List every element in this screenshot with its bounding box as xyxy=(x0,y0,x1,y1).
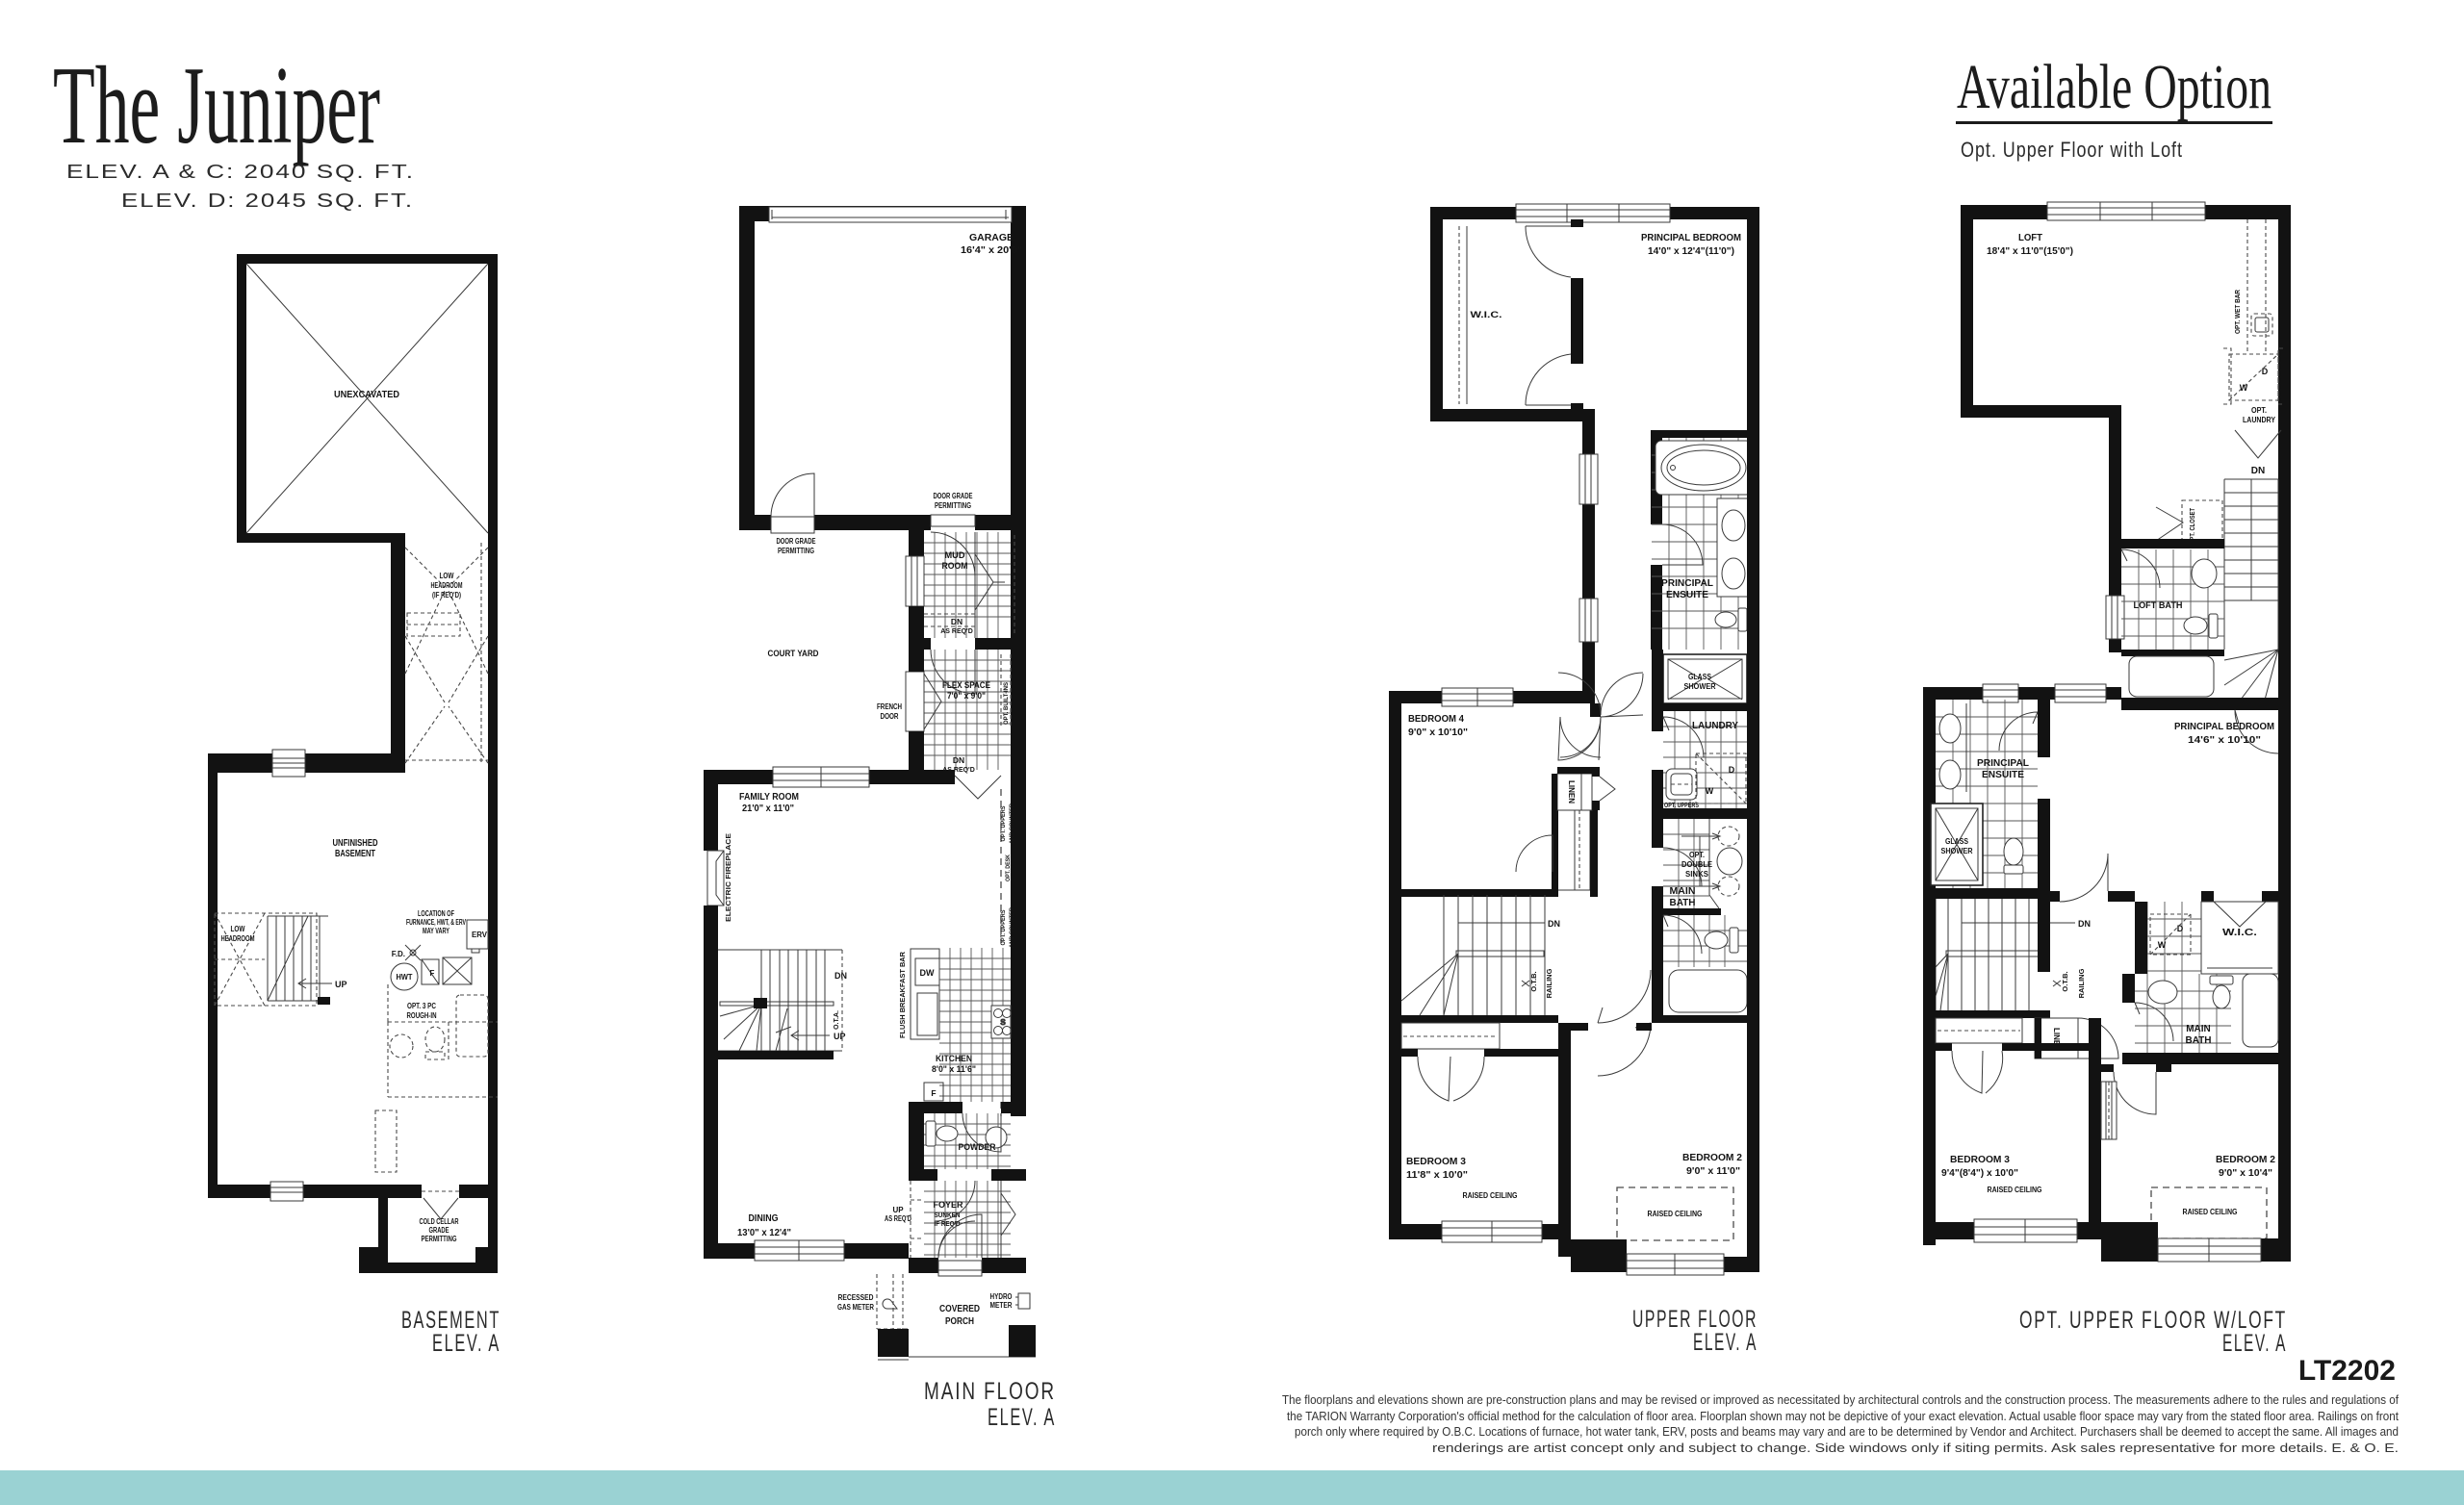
svg-text:DN: DN xyxy=(834,971,847,981)
svg-text:DN: DN xyxy=(2078,919,2091,929)
svg-text:ELECTRIC FIREPLACE: ELECTRIC FIREPLACE xyxy=(726,833,732,922)
svg-text:W: W xyxy=(2158,940,2167,950)
svg-text:BEDROOM 2: BEDROOM 2 xyxy=(2216,1154,2275,1165)
svg-text:LT2202: LT2202 xyxy=(2298,1355,2396,1387)
svg-text:W: W xyxy=(2240,383,2248,393)
svg-text:GARAGE: GARAGE xyxy=(969,232,1014,243)
svg-text:Available Option: Available Option xyxy=(1957,52,2271,122)
svg-text:RAISED CEILING: RAISED CEILING xyxy=(2183,1208,2238,1216)
svg-text:GRADE: GRADE xyxy=(429,1226,449,1235)
svg-text:OPT. 3 PC: OPT. 3 PC xyxy=(407,1002,436,1010)
svg-text:HEADROOM: HEADROOM xyxy=(431,581,463,590)
svg-text:BEDROOM 2: BEDROOM 2 xyxy=(1682,1152,1742,1163)
svg-text:UP: UP xyxy=(834,1032,846,1041)
svg-text:The Juniper: The Juniper xyxy=(53,44,380,167)
svg-text:OPT.: OPT. xyxy=(2251,406,2267,415)
svg-text:AS REQ'D: AS REQ'D xyxy=(885,1214,911,1223)
svg-text:F: F xyxy=(430,969,435,978)
svg-text:MUD: MUD xyxy=(945,550,966,560)
svg-text:Opt. Upper Floor with Loft: Opt. Upper Floor with Loft xyxy=(1961,138,2183,162)
svg-text:DN: DN xyxy=(953,755,964,765)
svg-text:O.T.A.: O.T.A. xyxy=(834,1010,840,1030)
svg-text:IF REQ'D: IF REQ'D xyxy=(935,1219,961,1228)
svg-text:D: D xyxy=(2262,367,2269,376)
svg-text:LAUNDRY: LAUNDRY xyxy=(2243,416,2276,424)
svg-text:ENSUITE: ENSUITE xyxy=(1982,769,2024,780)
svg-text:LINEN: LINEN xyxy=(1567,780,1576,804)
svg-text:GLASS: GLASS xyxy=(1945,837,1969,846)
svg-text:O.T.B.: O.T.B. xyxy=(1529,971,1538,991)
svg-text:LOCATION OF: LOCATION OF xyxy=(418,909,454,918)
svg-text:HEADROOM: HEADROOM xyxy=(221,934,255,943)
svg-text:D: D xyxy=(2177,924,2184,933)
svg-text:F: F xyxy=(931,1088,936,1098)
svg-text:GLASS: GLASS xyxy=(1688,673,1712,681)
svg-text:The floorplans and elevations: The floorplans and elevations shown are … xyxy=(1282,1392,2399,1407)
svg-text:9'0" x 10'4": 9'0" x 10'4" xyxy=(2219,1167,2272,1179)
svg-text:SHOWER: SHOWER xyxy=(1684,682,1716,691)
svg-text:HWT: HWT xyxy=(397,973,413,982)
svg-text:9'0" x 11'0": 9'0" x 11'0" xyxy=(1686,1165,1740,1177)
svg-text:MAY VARY: MAY VARY xyxy=(423,927,449,935)
svg-text:GAS METER: GAS METER xyxy=(837,1303,874,1312)
svg-text:MAIN: MAIN xyxy=(1670,885,1696,897)
svg-text:LOFT BATH: LOFT BATH xyxy=(2134,600,2183,611)
svg-text:BATH: BATH xyxy=(2185,1035,2211,1046)
svg-text:METER: METER xyxy=(990,1301,1013,1310)
svg-text:PORCH: PORCH xyxy=(945,1315,974,1327)
svg-text:RAISED CEILING: RAISED CEILING xyxy=(1463,1191,1518,1200)
svg-text:UNEXCAVATED: UNEXCAVATED xyxy=(334,390,399,400)
svg-text:PERMITTING: PERMITTING xyxy=(778,547,814,555)
svg-text:14'0" x 12'4"(11'0"): 14'0" x 12'4"(11'0") xyxy=(1648,245,1734,257)
svg-text:COVERED: COVERED xyxy=(939,1303,980,1314)
svg-text:W.I.C.: W.I.C. xyxy=(1471,310,1502,320)
svg-text:16'4" x 20'0": 16'4" x 20'0" xyxy=(961,244,1022,256)
svg-text:UP: UP xyxy=(335,980,347,989)
svg-text:14'6" x 10'10": 14'6" x 10'10" xyxy=(2188,734,2261,746)
svg-text:FRENCH: FRENCH xyxy=(877,702,902,711)
svg-text:BEDROOM 4: BEDROOM 4 xyxy=(1408,713,1464,725)
svg-text:BASEMENT: BASEMENT xyxy=(335,848,375,859)
svg-text:BATH: BATH xyxy=(1670,897,1696,908)
svg-text:MAIN: MAIN xyxy=(2186,1024,2211,1034)
svg-text:DOOR: DOOR xyxy=(881,712,899,721)
svg-text:OPT. UPPERS: OPT. UPPERS xyxy=(1000,909,1007,946)
svg-text:ELEV. A & C: 2040 SQ. FT.: ELEV. A & C: 2040 SQ. FT. xyxy=(66,161,415,183)
svg-text:D: D xyxy=(1729,765,1735,775)
svg-text:ELEV. A: ELEV. A xyxy=(2222,1330,2287,1357)
svg-text:DINING: DINING xyxy=(749,1212,779,1224)
svg-text:DOUBLE: DOUBLE xyxy=(1681,860,1713,869)
svg-text:UP: UP xyxy=(892,1206,904,1214)
svg-text:(IF REQ'D): (IF REQ'D) xyxy=(432,591,461,599)
svg-text:ELEV. A: ELEV. A xyxy=(1693,1329,1758,1356)
svg-text:RECESSED: RECESSED xyxy=(838,1293,874,1302)
svg-text:porch only where required by O: porch only where required by O.B.C. Loca… xyxy=(1295,1424,2399,1439)
svg-text:SINKS: SINKS xyxy=(1685,870,1709,879)
svg-text:LOFT: LOFT xyxy=(2018,232,2043,243)
svg-text:the TARION Warranty Corporatio: the TARION Warranty Corporation's offici… xyxy=(1287,1409,2399,1423)
svg-text:7'0" x 9'0": 7'0" x 9'0" xyxy=(947,691,986,701)
svg-text:PRINCIPAL BEDROOM: PRINCIPAL BEDROOM xyxy=(2174,721,2274,732)
svg-text:RAISED CEILING: RAISED CEILING xyxy=(1988,1186,2042,1194)
svg-text:DOOR GRADE: DOOR GRADE xyxy=(934,492,973,500)
svg-text:RAILING: RAILING xyxy=(1545,968,1553,998)
svg-text:ROUGH-IN: ROUGH-IN xyxy=(407,1011,437,1020)
svg-text:OPT. UPPERS: OPT. UPPERS xyxy=(1000,805,1007,842)
svg-text:LOW: LOW xyxy=(231,925,245,933)
svg-text:OPT. DESK: OPT. DESK xyxy=(1005,855,1012,881)
svg-text:renderings are artist concept: renderings are artist concept only and s… xyxy=(1432,1441,2399,1455)
svg-text:ENSUITE: ENSUITE xyxy=(1666,589,1708,600)
svg-text:ELEV. D: 2045 SQ. FT.: ELEV. D: 2045 SQ. FT. xyxy=(121,190,414,212)
svg-text:PRINCIPAL: PRINCIPAL xyxy=(1977,757,2030,769)
svg-text:21'0" x 11'0": 21'0" x 11'0" xyxy=(742,803,794,814)
svg-text:DN: DN xyxy=(951,617,962,626)
svg-text:18'4" x 11'0"(15'0"): 18'4" x 11'0"(15'0") xyxy=(1987,245,2073,257)
svg-text:AS REQ'D: AS REQ'D xyxy=(940,628,973,635)
svg-text:W: W xyxy=(1706,786,1714,796)
svg-text:DN: DN xyxy=(1548,919,1560,929)
svg-text:FOYER: FOYER xyxy=(934,1200,963,1211)
svg-text:RAISED CEILING: RAISED CEILING xyxy=(1648,1210,1703,1218)
svg-text:W.I.C.: W.I.C. xyxy=(2222,928,2257,938)
svg-text:KITCHEN: KITCHEN xyxy=(936,1054,972,1063)
svg-text:PERMITTING: PERMITTING xyxy=(935,501,971,510)
svg-text:FURNANCE, HWT, & ERV: FURNANCE, HWT, & ERV xyxy=(406,918,466,927)
svg-text:PRINCIPAL BEDROOM: PRINCIPAL BEDROOM xyxy=(1641,232,1741,243)
svg-text:8'0" x 11'6": 8'0" x 11'6" xyxy=(932,1064,976,1074)
svg-text:OPT. UPPERS: OPT. UPPERS xyxy=(1664,803,1699,809)
svg-text:ELEV. A: ELEV. A xyxy=(432,1330,500,1357)
svg-text:S: S xyxy=(1000,1018,1006,1027)
svg-text:9'4"(8'4") x 10'0": 9'4"(8'4") x 10'0" xyxy=(1941,1167,2018,1179)
svg-text:9'0" x 10'10": 9'0" x 10'10" xyxy=(1408,727,1468,738)
svg-text:OPT. WET BAR: OPT. WET BAR xyxy=(2235,290,2242,334)
svg-text:HYDRO: HYDRO xyxy=(990,1292,1013,1301)
svg-text:ERV: ERV xyxy=(472,931,488,939)
svg-text:FAMILY ROOM: FAMILY ROOM xyxy=(739,791,799,803)
svg-text:OPT.: OPT. xyxy=(1689,851,1705,859)
svg-text:11'8" x 10'0": 11'8" x 10'0" xyxy=(1406,1169,1468,1181)
svg-text:13'0" x 12'4": 13'0" x 12'4" xyxy=(737,1227,791,1238)
svg-text:DOOR GRADE: DOOR GRADE xyxy=(777,537,816,546)
svg-text:FLEX SPACE: FLEX SPACE xyxy=(942,680,990,690)
svg-text:COURT YARD: COURT YARD xyxy=(768,649,819,659)
svg-text:COLD CELLAR: COLD CELLAR xyxy=(420,1217,459,1226)
svg-text:DW: DW xyxy=(920,968,935,978)
svg-text:ROOM: ROOM xyxy=(942,561,968,571)
svg-text:BEDROOM 3: BEDROOM 3 xyxy=(1950,1154,2010,1165)
svg-text:PRINCIPAL: PRINCIPAL xyxy=(1661,577,1714,589)
svg-text:RAILING: RAILING xyxy=(2077,968,2086,998)
svg-text:DN: DN xyxy=(2251,466,2265,476)
svg-text:OPT. BUILT-INS: OPT. BUILT-INS xyxy=(1003,681,1010,725)
svg-text:BEDROOM 3: BEDROOM 3 xyxy=(1406,1156,1466,1167)
svg-text:LAUNDRY: LAUNDRY xyxy=(1692,721,1738,731)
svg-text:FLUSH BREAKFAST BAR: FLUSH BREAKFAST BAR xyxy=(900,952,907,1038)
svg-text:AND COUNTER: AND COUNTER xyxy=(1009,907,1015,948)
svg-text:AND COUNTER: AND COUNTER xyxy=(1009,804,1015,844)
svg-text:PERMITTING: PERMITTING xyxy=(422,1235,457,1243)
svg-text:O.T.B.: O.T.B. xyxy=(2061,971,2069,991)
svg-text:MAIN FLOOR: MAIN FLOOR xyxy=(924,1378,1056,1405)
svg-text:SHOWER: SHOWER xyxy=(1941,847,1973,855)
svg-text:ELEV. A: ELEV. A xyxy=(988,1404,1056,1431)
svg-text:LOW: LOW xyxy=(440,572,454,580)
svg-text:F.D.: F.D. xyxy=(392,950,405,958)
